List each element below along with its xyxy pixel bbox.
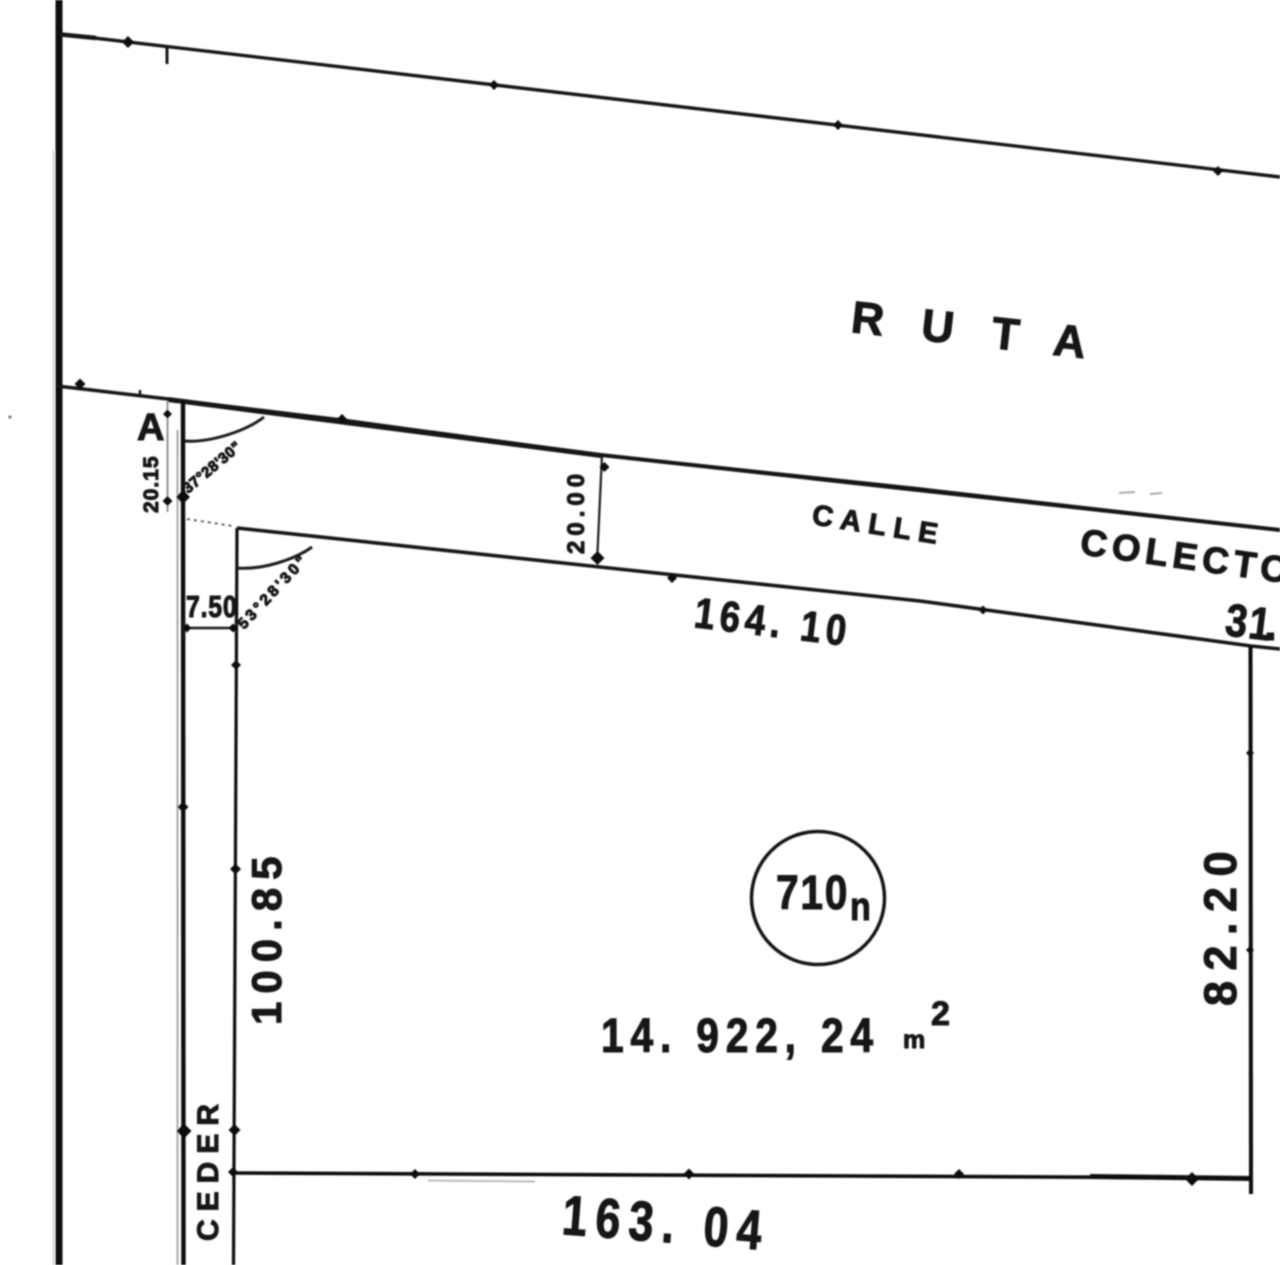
svg-text:m: m bbox=[903, 1026, 925, 1054]
svg-text:20.15: 20.15 bbox=[140, 455, 163, 513]
svg-text:14. 922, 24: 14. 922, 24 bbox=[601, 1010, 880, 1063]
svg-text:A: A bbox=[137, 407, 164, 449]
svg-text:82.20: 82.20 bbox=[1195, 841, 1246, 1006]
svg-text:20.00: 20.00 bbox=[563, 469, 590, 554]
svg-text:.: . bbox=[1264, 598, 1277, 650]
svg-text:2: 2 bbox=[931, 995, 950, 1033]
svg-text:100.85: 100.85 bbox=[243, 849, 290, 1025]
svg-text:CEDER: CEDER bbox=[192, 1096, 225, 1241]
svg-text:7.50: 7.50 bbox=[186, 589, 237, 623]
